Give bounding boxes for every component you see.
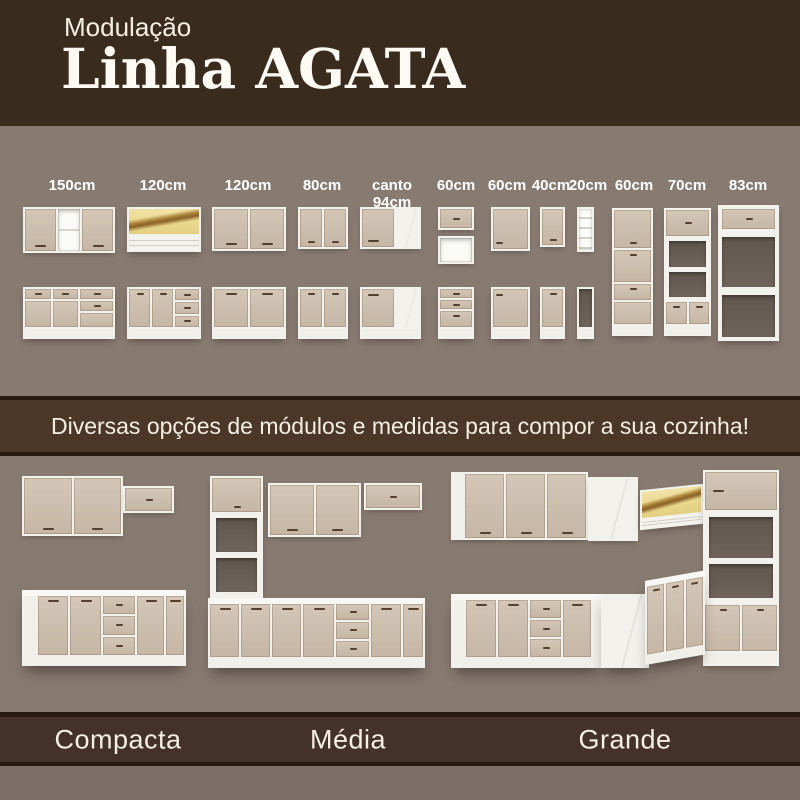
module-base-120cm bbox=[212, 287, 286, 339]
base-front bbox=[451, 600, 601, 657]
cabinet-door bbox=[137, 596, 164, 655]
module-base-120cm-drawers bbox=[127, 287, 201, 339]
module-size-label: 70cm bbox=[657, 177, 717, 194]
cabinet-door bbox=[272, 604, 301, 657]
cabinet-door bbox=[666, 580, 683, 651]
module-wall-corner-94cm bbox=[360, 207, 421, 249]
corner-panel bbox=[396, 289, 419, 327]
module-wall-60cm bbox=[491, 207, 530, 251]
toe-kick bbox=[451, 657, 601, 668]
module-base-60cm-drawers bbox=[438, 287, 474, 339]
module-shelf-20cm bbox=[577, 207, 594, 252]
drawer-front bbox=[530, 600, 561, 618]
cabinet-door bbox=[466, 600, 496, 657]
door-pair bbox=[666, 302, 709, 324]
toe-kick bbox=[579, 329, 592, 337]
module-base-corner-94cm bbox=[360, 287, 421, 339]
cabinet-door bbox=[614, 284, 651, 300]
drawer-column bbox=[80, 289, 113, 327]
module-size-label: 83cm bbox=[718, 177, 778, 194]
cabinet-door bbox=[300, 209, 322, 247]
toe-kick bbox=[614, 326, 651, 334]
drawer-front bbox=[103, 637, 135, 655]
cabinet-door bbox=[82, 209, 113, 251]
cabinet-door bbox=[25, 209, 56, 251]
cabinet-door bbox=[366, 485, 420, 508]
module-wall-60cm-flip bbox=[438, 207, 474, 230]
corner-filler bbox=[593, 600, 599, 657]
drawer-front bbox=[175, 316, 199, 327]
module-size-label: 150cm bbox=[42, 177, 102, 194]
module-wall-120cm-glass bbox=[127, 207, 201, 252]
module-base-150cm bbox=[23, 287, 115, 339]
tower-niche bbox=[212, 514, 261, 596]
cabinet-door bbox=[129, 289, 150, 327]
toe-kick bbox=[129, 329, 199, 337]
tower-niche bbox=[705, 513, 777, 602]
module-tall-70cm-oven-tower bbox=[664, 208, 711, 336]
base-front bbox=[645, 576, 705, 655]
drawer-front bbox=[336, 604, 369, 620]
cabinet-door bbox=[241, 604, 270, 657]
toe-kick bbox=[208, 657, 425, 668]
cabinet-door bbox=[24, 478, 72, 534]
module-tall-83cm-fridge-frame bbox=[718, 205, 779, 341]
module-wall-60cm-niche bbox=[438, 236, 474, 264]
cabinet-door bbox=[614, 210, 651, 248]
door-column bbox=[25, 289, 78, 327]
drawer-front bbox=[530, 620, 561, 638]
drawer-front bbox=[440, 300, 472, 309]
toe-kick bbox=[300, 329, 346, 337]
opening bbox=[216, 518, 257, 552]
base-front bbox=[208, 604, 425, 657]
corner-base-cabinet bbox=[601, 594, 649, 668]
opening bbox=[709, 564, 773, 598]
base-front bbox=[214, 289, 284, 327]
banner-text: Diversas opções de módulos e medidas par… bbox=[51, 413, 749, 440]
base-run bbox=[208, 598, 425, 668]
cabinet-door bbox=[666, 302, 687, 324]
wall-cabinet bbox=[364, 483, 422, 510]
cabinet-door bbox=[506, 474, 545, 538]
drawer-front bbox=[53, 289, 79, 299]
drawer-front bbox=[336, 622, 369, 638]
glass-frame bbox=[129, 236, 199, 250]
drawer-front bbox=[25, 289, 51, 299]
shelf-unit bbox=[579, 209, 592, 250]
wall-cabinet bbox=[268, 483, 361, 537]
drawer-column bbox=[175, 289, 199, 327]
cabinet-door bbox=[300, 289, 322, 327]
cabinet-door bbox=[440, 311, 472, 327]
corner-wall-cabinet bbox=[588, 477, 638, 541]
cabinet-door bbox=[705, 472, 777, 510]
cabinet-door bbox=[70, 596, 101, 655]
module-tall-60cm-pantry bbox=[612, 208, 653, 336]
corner-panel bbox=[396, 209, 419, 247]
cabinet-door bbox=[74, 478, 122, 534]
base-run-right bbox=[645, 570, 705, 665]
drawer-front bbox=[440, 289, 472, 298]
cabinet-door bbox=[547, 474, 586, 538]
drawer-front bbox=[80, 289, 113, 299]
toe-kick bbox=[22, 655, 186, 666]
toe-kick bbox=[705, 654, 777, 664]
cabinet-door bbox=[250, 289, 284, 327]
cabinet-door bbox=[542, 289, 563, 327]
oven-niche bbox=[666, 238, 709, 300]
module-size-label: 120cm bbox=[218, 177, 278, 194]
opening bbox=[722, 295, 775, 337]
corner-panel bbox=[601, 594, 649, 668]
toe-kick bbox=[214, 329, 284, 337]
drawer-front bbox=[175, 289, 199, 300]
cabinet-door bbox=[722, 209, 775, 229]
opening bbox=[709, 517, 773, 558]
banner: Diversas opções de módulos e medidas par… bbox=[0, 396, 800, 456]
cabinet-door bbox=[666, 210, 709, 236]
corner-panel bbox=[590, 479, 636, 539]
cabinet-door bbox=[362, 289, 394, 327]
base-front bbox=[25, 289, 113, 327]
cabinet-door bbox=[166, 596, 184, 655]
module-size-label: 120cm bbox=[133, 177, 193, 194]
cabinet-door bbox=[403, 604, 423, 657]
cabinet-door bbox=[125, 488, 172, 511]
cabinet-door bbox=[689, 302, 710, 324]
catalog-page: Modulação Linha AGATA 150cm 120cm 120cm … bbox=[0, 0, 800, 800]
door-row bbox=[25, 301, 78, 327]
opening bbox=[669, 241, 706, 267]
module-size-label: 60cm bbox=[604, 177, 664, 194]
drawer-front bbox=[175, 302, 199, 313]
cabinet-door bbox=[324, 289, 346, 327]
cabinet-door bbox=[80, 313, 113, 327]
cabinet-door bbox=[742, 605, 777, 651]
cabinet-door bbox=[25, 301, 51, 327]
toe-kick bbox=[440, 329, 472, 337]
cabinet-door bbox=[614, 250, 651, 282]
drawer-front bbox=[103, 596, 135, 614]
module-size-label: 80cm bbox=[292, 177, 352, 194]
cabinet-door bbox=[324, 209, 346, 247]
cabinet-door bbox=[53, 301, 79, 327]
module-size-label: canto 94cm bbox=[351, 177, 433, 211]
cabinet-door bbox=[212, 478, 261, 512]
opening bbox=[669, 272, 706, 298]
page-title: Linha AGATA bbox=[61, 36, 465, 101]
side-panel bbox=[24, 596, 36, 655]
base-front bbox=[300, 289, 346, 327]
kitchen-label-grande: Grande bbox=[545, 724, 705, 755]
cabinet-door bbox=[316, 485, 360, 535]
cabinet-door bbox=[440, 209, 472, 228]
glass-doors bbox=[642, 486, 701, 518]
drawer-column bbox=[103, 596, 135, 655]
base-run bbox=[451, 594, 601, 668]
drawer-front bbox=[336, 641, 369, 657]
drawer-column bbox=[336, 604, 369, 657]
opening bbox=[722, 237, 775, 287]
cabinet-door bbox=[705, 605, 740, 651]
module-base-60cm bbox=[491, 287, 530, 339]
door-pair bbox=[705, 605, 777, 651]
base-run bbox=[22, 590, 186, 666]
module-wall-40cm bbox=[540, 207, 565, 247]
module-wall-80cm bbox=[298, 207, 348, 249]
kitchen-label-compacta: Compacta bbox=[38, 724, 198, 755]
side-panel bbox=[453, 600, 464, 657]
module-base-20cm-niche bbox=[577, 287, 594, 339]
cabinet-door bbox=[614, 302, 651, 324]
toe-kick bbox=[542, 329, 563, 337]
cabinet-door bbox=[498, 600, 528, 657]
open-niche bbox=[440, 238, 472, 262]
cabinet-door bbox=[686, 577, 703, 648]
cabinet-door bbox=[493, 209, 528, 249]
base-front bbox=[129, 289, 199, 327]
cabinet-door bbox=[493, 289, 528, 327]
module-wall-150cm bbox=[23, 207, 115, 253]
cabinet-door bbox=[465, 474, 504, 538]
open-niche bbox=[58, 209, 80, 251]
cabinet-door bbox=[303, 604, 334, 657]
cabinet-door bbox=[250, 209, 284, 249]
drawer-row bbox=[25, 289, 78, 299]
opening bbox=[216, 558, 257, 592]
cabinet-door bbox=[362, 209, 394, 247]
oven-tower bbox=[210, 476, 263, 598]
cabinet-door bbox=[38, 596, 68, 655]
module-base-40cm bbox=[540, 287, 565, 339]
module-wall-120cm bbox=[212, 207, 286, 251]
drawer-column bbox=[530, 600, 561, 657]
drawer-front bbox=[80, 301, 113, 311]
toe-kick bbox=[493, 329, 528, 337]
cabinet-door bbox=[647, 584, 664, 655]
opening bbox=[579, 289, 592, 327]
cabinet-door bbox=[152, 289, 173, 327]
cabinet-door bbox=[214, 289, 248, 327]
cabinet-door bbox=[214, 209, 248, 249]
cabinet-door bbox=[542, 209, 563, 245]
toe-kick bbox=[25, 329, 113, 337]
tall-tower bbox=[703, 470, 779, 666]
drawer-front bbox=[530, 639, 561, 657]
wall-cabinet bbox=[123, 486, 174, 513]
module-base-80cm bbox=[298, 287, 348, 339]
cabinet-door bbox=[563, 600, 591, 657]
side-panel bbox=[453, 474, 463, 538]
cabinet-door bbox=[371, 604, 401, 657]
glass-doors bbox=[129, 209, 199, 234]
toe-kick bbox=[362, 329, 419, 337]
cabinet-door bbox=[210, 604, 239, 657]
drawer-front bbox=[103, 616, 135, 634]
kitchen-label-media: Média bbox=[268, 724, 428, 755]
base-front bbox=[362, 289, 419, 327]
cabinet-door bbox=[270, 485, 314, 535]
kitchen-labels-band: Compacta Média Grande bbox=[0, 712, 800, 766]
wall-cabinet bbox=[22, 476, 123, 536]
toe-kick bbox=[666, 326, 709, 334]
base-front bbox=[22, 596, 186, 655]
bottom-strip bbox=[0, 766, 800, 800]
header: Modulação Linha AGATA bbox=[0, 0, 800, 126]
wall-cabinet-run bbox=[451, 472, 588, 540]
glass-wall-cabinet bbox=[640, 484, 703, 531]
